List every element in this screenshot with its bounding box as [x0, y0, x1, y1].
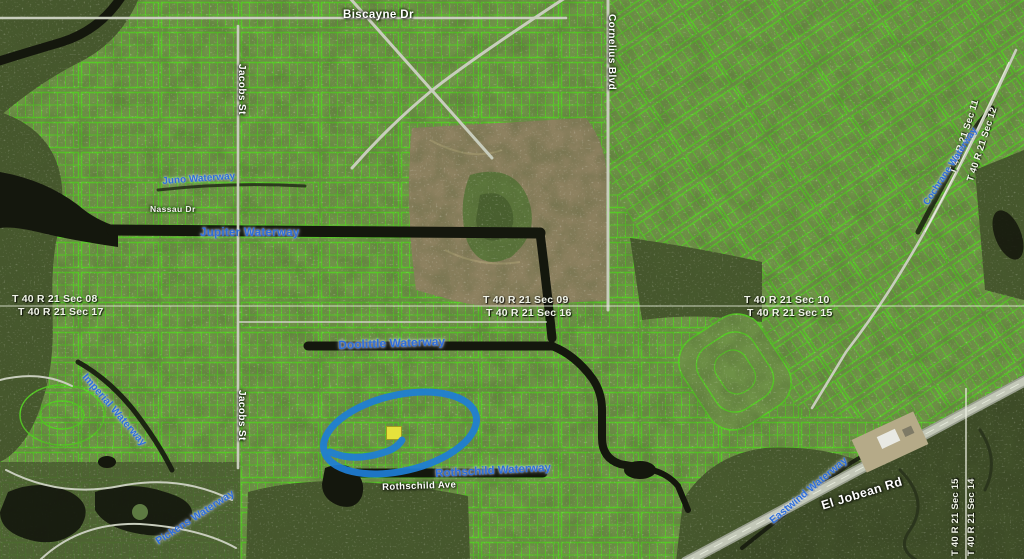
highlighted-parcel[interactable]	[387, 427, 402, 440]
map-canvas	[0, 0, 1024, 559]
map-viewport[interactable]: Biscayne Dr Cornelius Blvd Jacobs St Jun…	[0, 0, 1024, 559]
